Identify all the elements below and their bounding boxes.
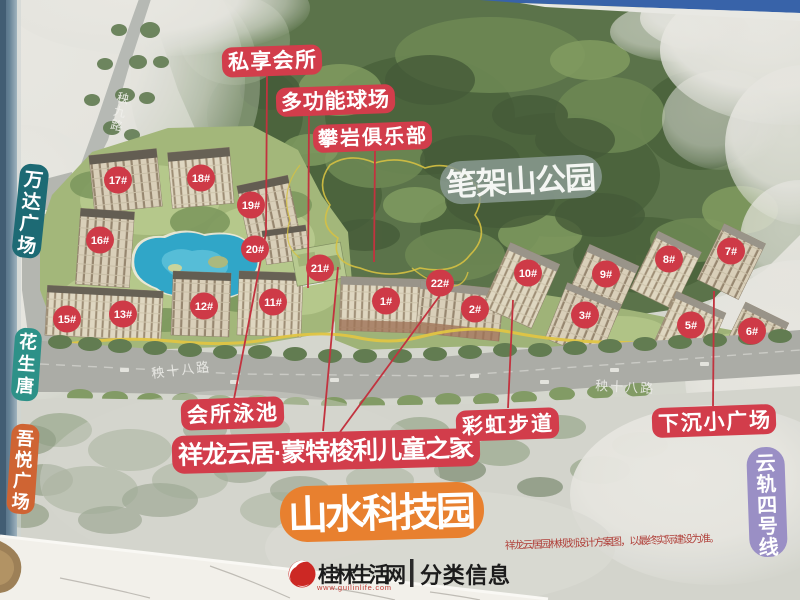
svg-text:悦: 悦: [14, 448, 33, 470]
svg-text:1#: 1#: [380, 296, 392, 308]
svg-text:8#: 8#: [663, 254, 675, 266]
svg-text:21#: 21#: [311, 263, 329, 275]
svg-text:17#: 17#: [109, 175, 127, 187]
svg-text:万: 万: [22, 169, 44, 192]
svg-text:吾: 吾: [15, 428, 34, 449]
svg-text:广: 广: [18, 211, 39, 236]
svg-text:场: 场: [11, 491, 30, 512]
svg-text:3#: 3#: [579, 310, 591, 322]
svg-text:9#: 9#: [600, 269, 612, 281]
svg-text:山水科技园: 山水科技园: [288, 490, 477, 539]
svg-text:2#: 2#: [469, 304, 481, 316]
svg-text:13#: 13#: [114, 309, 132, 321]
svg-text:20#: 20#: [246, 244, 264, 256]
svg-text:秧十八路: 秧十八路: [595, 378, 656, 396]
svg-text:5#: 5#: [685, 320, 697, 332]
svg-text:18#: 18#: [192, 173, 210, 185]
svg-text:12#: 12#: [195, 301, 213, 313]
svg-text:唐: 唐: [15, 374, 34, 396]
svg-text:7#: 7#: [725, 246, 737, 258]
svg-text:广: 广: [12, 469, 31, 491]
svg-text:云: 云: [755, 453, 776, 476]
svg-text:多功能球场: 多功能球场: [281, 87, 390, 115]
svg-text:达: 达: [21, 189, 42, 214]
svg-text:10#: 10#: [519, 268, 537, 280]
svg-text:15#: 15#: [58, 314, 76, 326]
svg-text:下沉小广场: 下沉小广场: [658, 408, 771, 436]
svg-text:轨: 轨: [756, 472, 777, 497]
svg-text:分类信息: 分类信息: [420, 563, 510, 588]
svg-text:号: 号: [757, 515, 778, 539]
svg-text:22#: 22#: [431, 278, 449, 290]
svg-text:11#: 11#: [264, 297, 282, 309]
svg-text:www.guilinlife.com: www.guilinlife.com: [316, 583, 391, 592]
svg-text:19#: 19#: [242, 200, 260, 212]
svg-text:花: 花: [18, 330, 37, 352]
svg-text:6#: 6#: [746, 326, 758, 338]
svg-text:四: 四: [757, 495, 778, 518]
svg-text:生: 生: [17, 352, 36, 374]
svg-text:场: 场: [16, 234, 37, 258]
svg-text:线: 线: [758, 535, 779, 560]
svg-text:16#: 16#: [91, 235, 109, 247]
